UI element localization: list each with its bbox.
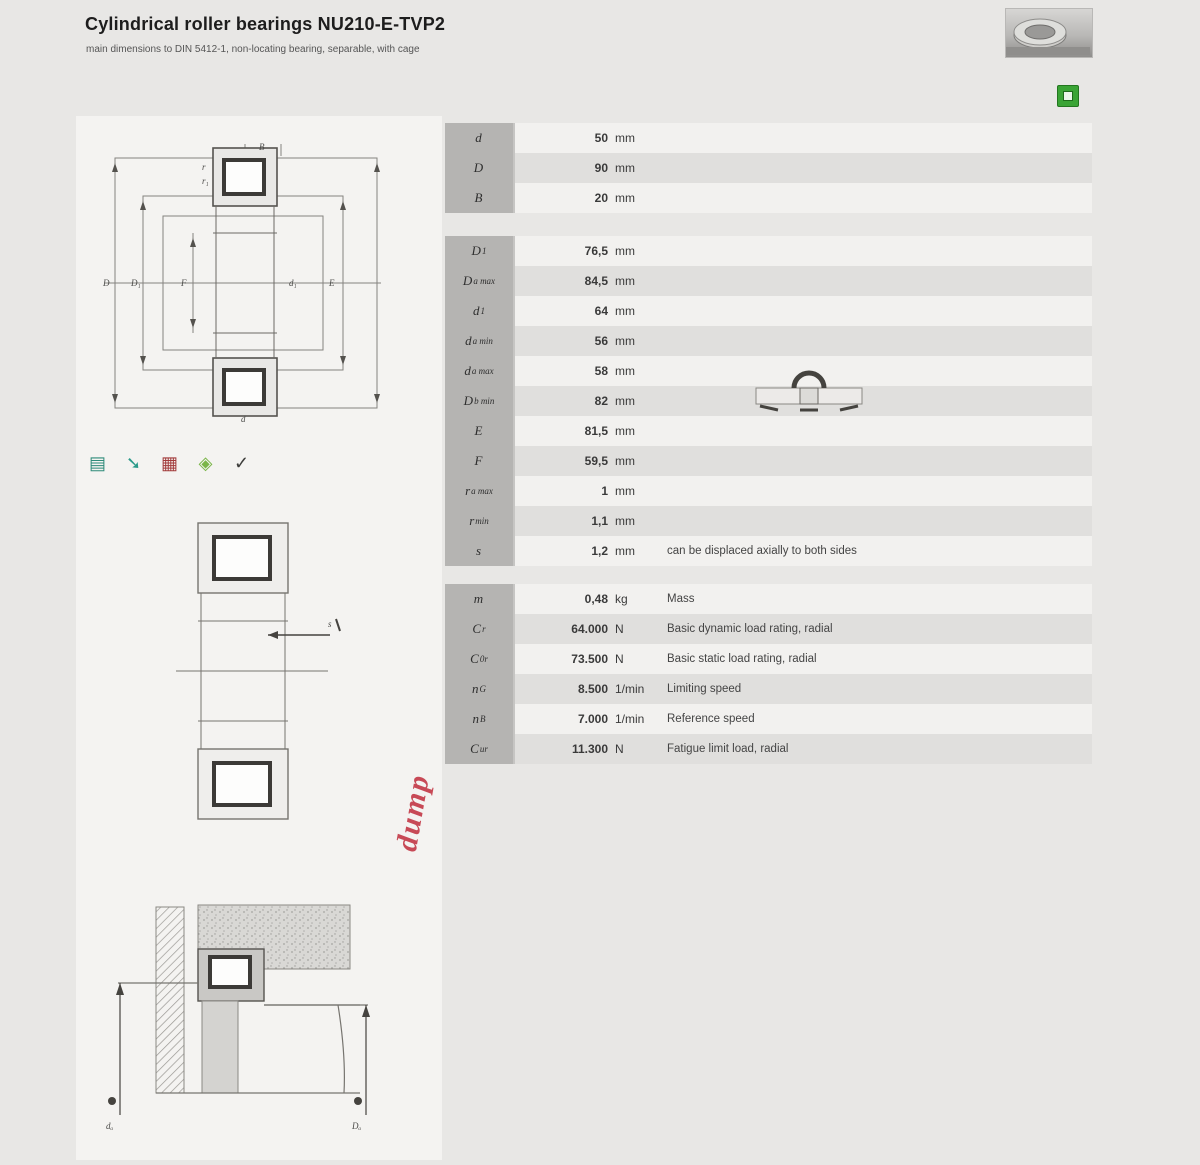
label-F: F	[180, 278, 187, 288]
unit-cell: 1/min	[615, 712, 667, 726]
symbol-cell: F	[445, 446, 515, 476]
symbol-cell: rmin	[445, 506, 515, 536]
symbol-cell: da min	[445, 326, 515, 356]
interchange-icon[interactable]	[1057, 85, 1079, 107]
value-cell: 1,1	[515, 514, 615, 528]
label-B: B	[259, 142, 265, 152]
label-da: dₐ	[106, 1121, 114, 1131]
table-row: nG 8.500 1/min Limiting speed	[445, 674, 1092, 704]
product-photo[interactable]	[1005, 8, 1093, 58]
toolbar: ▤ ➘ ▦ ◈ ✓	[85, 450, 254, 475]
value-cell: 20	[515, 191, 615, 205]
table-row: m 0,48 kg Mass	[445, 584, 1092, 614]
symbol-cell: C0r	[445, 644, 515, 674]
value-cell: 84,5	[515, 274, 615, 288]
unit-cell: mm	[615, 424, 667, 438]
value-cell: 76,5	[515, 244, 615, 258]
pdf-table-icon[interactable]: ▦	[157, 450, 182, 475]
table-row: Da max 84,5 mm	[445, 266, 1092, 296]
value-cell: 64	[515, 304, 615, 318]
mounting-drawing: dₐ Dₐ	[98, 893, 386, 1151]
unit-cell: mm	[615, 161, 667, 175]
unit-cell: 1/min	[615, 682, 667, 696]
bearing-arrangement-diagram	[748, 352, 870, 418]
symbol-cell: d1	[445, 296, 515, 326]
value-cell: 8.500	[515, 682, 615, 696]
table-row: d 50 mm	[445, 123, 1092, 153]
value-cell: 0,48	[515, 592, 615, 606]
table-row: C0r 73.500 N Basic static load rating, r…	[445, 644, 1092, 674]
symbol-cell: D	[445, 153, 515, 183]
unit-cell: mm	[615, 191, 667, 205]
value-cell: 7.000	[515, 712, 615, 726]
main-dimensions-table: d 50 mm D 90 mm B 20 mm	[445, 123, 1092, 213]
unit-cell: mm	[615, 274, 667, 288]
description-cell: Reference speed	[667, 713, 1092, 725]
performance-table: m 0,48 kg Mass Cr 64.000 N Basic dynamic…	[445, 584, 1092, 764]
table-row: Cr 64.000 N Basic dynamic load rating, r…	[445, 614, 1092, 644]
unit-cell: kg	[615, 592, 667, 606]
table-row: ra max 1 mm	[445, 476, 1092, 506]
bearing-photo-art	[1006, 9, 1090, 55]
description-cell: Mass	[667, 593, 1092, 605]
value-cell: 81,5	[515, 424, 615, 438]
unit-cell: mm	[615, 364, 667, 378]
unit-cell: mm	[615, 514, 667, 528]
symbol-cell: D1	[445, 236, 515, 266]
description-cell: Fatigue limit load, radial	[667, 743, 1092, 755]
download-icon[interactable]: ✓	[229, 450, 254, 475]
unit-cell: mm	[615, 484, 667, 498]
value-cell: 59,5	[515, 454, 615, 468]
value-cell: 73.500	[515, 652, 615, 666]
link-arrow-icon[interactable]: ➘	[121, 450, 146, 475]
table-row: D 90 mm	[445, 153, 1092, 183]
symbol-cell: d	[445, 123, 515, 153]
unit-cell: N	[615, 652, 667, 666]
unit-cell: mm	[615, 334, 667, 348]
table-row: d1 64 mm	[445, 296, 1092, 326]
table-row: Cur 11.300 N Fatigue limit load, radial	[445, 734, 1092, 764]
catalogue-icon[interactable]: ▤	[85, 450, 110, 475]
description-cell: can be displaced axially to both sides	[667, 545, 1092, 557]
symbol-cell: Db min	[445, 386, 515, 416]
symbol-cell: da max	[445, 356, 515, 386]
table-row: D1 76,5 mm	[445, 236, 1092, 266]
symbol-cell: Cr	[445, 614, 515, 644]
label-d: d	[241, 414, 246, 424]
unit-cell: N	[615, 622, 667, 636]
symbol-cell: nB	[445, 704, 515, 734]
label-r: r	[202, 162, 206, 172]
table-row: nB 7.000 1/min Reference speed	[445, 704, 1092, 734]
value-cell: 64.000	[515, 622, 615, 636]
cross-section-drawing: s	[168, 515, 378, 827]
value-cell: 56	[515, 334, 615, 348]
value-cell: 82	[515, 394, 615, 408]
label-s: s	[328, 619, 332, 629]
unit-cell: mm	[615, 454, 667, 468]
unit-cell: mm	[615, 131, 667, 145]
label-d1: d₁	[289, 278, 297, 288]
value-cell: 50	[515, 131, 615, 145]
symbol-cell: E	[445, 416, 515, 446]
table-row: F 59,5 mm	[445, 446, 1092, 476]
unit-cell: mm	[615, 304, 667, 318]
table-row: E 81,5 mm	[445, 416, 1092, 446]
datasheet-page: Cylindrical roller bearings NU210-E-TVP2…	[0, 0, 1200, 1165]
description-cell: Limiting speed	[667, 683, 1092, 695]
symbol-cell: nG	[445, 674, 515, 704]
table-row: rmin 1,1 mm	[445, 506, 1092, 536]
symbol-cell: Cur	[445, 734, 515, 764]
value-cell: 11.300	[515, 742, 615, 756]
symbol-cell: s	[445, 536, 515, 566]
value-cell: 1	[515, 484, 615, 498]
label-E: E	[328, 278, 335, 288]
cad-icon[interactable]: ◈	[193, 450, 218, 475]
value-cell: 1,2	[515, 544, 615, 558]
interchange-icon-glyph	[1063, 91, 1073, 101]
table-row: B 20 mm	[445, 183, 1092, 213]
unit-cell: mm	[615, 244, 667, 258]
table-row: s 1,2 mm can be displaced axially to bot…	[445, 536, 1092, 566]
value-cell: 90	[515, 161, 615, 175]
value-cell: 58	[515, 364, 615, 378]
unit-cell: mm	[615, 394, 667, 408]
page-title: Cylindrical roller bearings NU210-E-TVP2	[85, 14, 445, 35]
symbol-cell: Da max	[445, 266, 515, 296]
symbol-cell: ra max	[445, 476, 515, 506]
label-D: D	[102, 278, 110, 288]
description-cell: Basic static load rating, radial	[667, 653, 1092, 665]
unit-cell: N	[615, 742, 667, 756]
label-Da: Dₐ	[351, 1121, 361, 1131]
description-cell: Basic dynamic load rating, radial	[667, 623, 1092, 635]
unit-cell: mm	[615, 544, 667, 558]
page-subtitle: main dimensions to DIN 5412-1, non-locat…	[86, 44, 420, 55]
main-dimensions-drawing: D D₁ F d₁ E B r r₁ d	[85, 138, 391, 426]
label-r1: r₁	[202, 176, 209, 186]
symbol-cell: B	[445, 183, 515, 213]
symbol-cell: m	[445, 584, 515, 614]
label-D1: D₁	[130, 278, 141, 288]
